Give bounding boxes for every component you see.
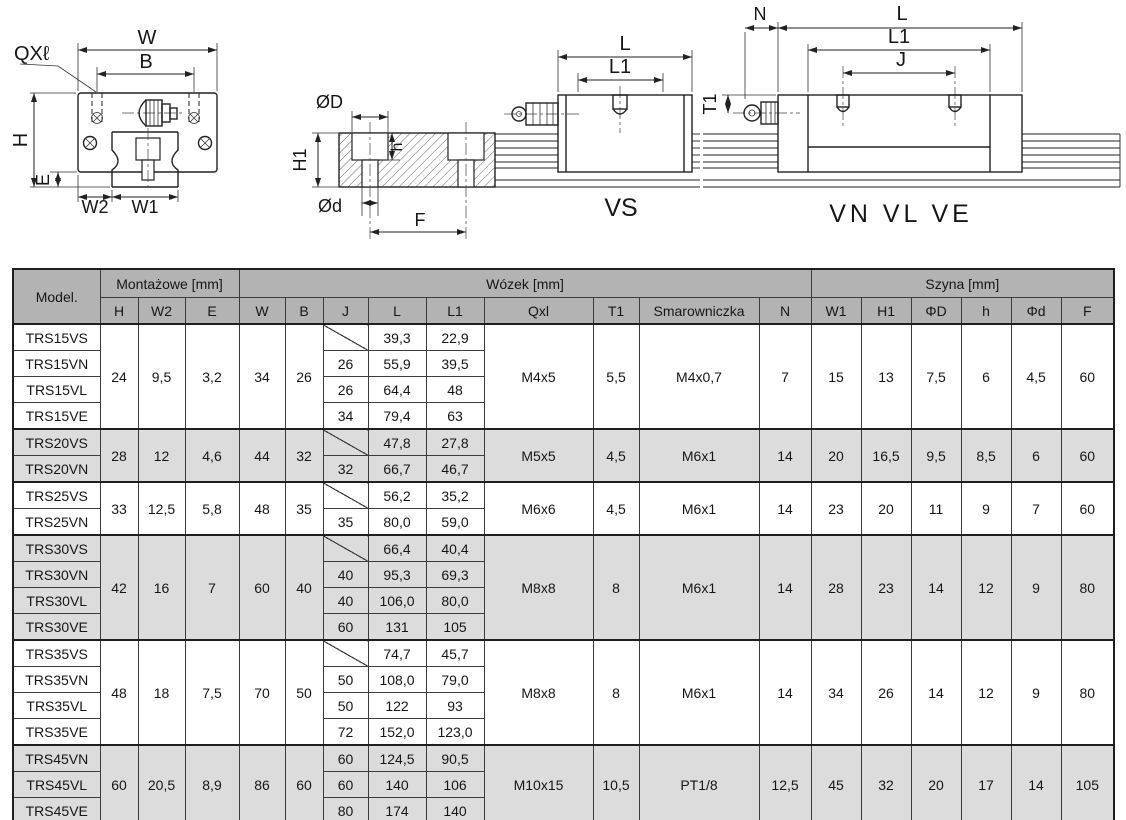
model-cell: TRS25VN <box>13 509 100 536</box>
model-cell: TRS45VE <box>13 798 100 820</box>
value-cell-J: 26 <box>323 351 368 377</box>
group-header: Wózek [mm] <box>239 269 811 298</box>
value-cell-L1: 80,0 <box>426 588 484 614</box>
value-cell-Φd: 14 <box>1011 745 1061 820</box>
model-cell: TRS45VN <box>13 745 100 772</box>
column-header-Qxl: Qxl <box>484 298 593 325</box>
value-cell-F: 60 <box>1061 482 1114 535</box>
model-cell: TRS25VS <box>13 482 100 509</box>
value-cell-L: 152,0 <box>368 719 426 746</box>
table-row: TRS15VS249,53,2342639,322,9M4x55,5M4x0,7… <box>13 324 1114 351</box>
value-cell-W2: 18 <box>138 640 185 745</box>
model-cell: TRS20VS <box>13 429 100 456</box>
value-cell-L: 124,5 <box>368 745 426 772</box>
value-cell-W1: 28 <box>811 535 861 640</box>
dim-label-l1-vs: L1 <box>609 56 631 78</box>
value-cell-L: 74,7 <box>368 640 426 667</box>
value-cell-h: 17 <box>961 745 1011 820</box>
value-cell-J: 32 <box>323 456 368 483</box>
dim-label-w2: W2 <box>82 197 109 217</box>
value-cell-Φd: 9 <box>1011 535 1061 640</box>
value-cell-E: 7,5 <box>185 640 239 745</box>
value-cell-L: 174 <box>368 798 426 820</box>
model-cell: TRS15VE <box>13 403 100 430</box>
value-cell-h: 12 <box>961 535 1011 640</box>
table-row: TRS45VN6020,58,9866060124,590,5M10x1510,… <box>13 745 1114 772</box>
value-cell-h: 8,5 <box>961 429 1011 482</box>
value-cell-B: 60 <box>285 745 323 820</box>
value-cell-h: 12 <box>961 640 1011 745</box>
value-cell-L: 80,0 <box>368 509 426 536</box>
dim-label-j: J <box>896 49 906 71</box>
value-cell-h: 6 <box>961 324 1011 429</box>
value-cell-L: 122 <box>368 693 426 719</box>
value-cell-L1: 22,9 <box>426 324 484 351</box>
value-cell-L1: 69,3 <box>426 562 484 588</box>
value-cell-ΦD: 7,5 <box>911 324 961 429</box>
value-cell-Smarowniczka: M6x1 <box>639 535 759 640</box>
model-cell: TRS30VS <box>13 535 100 562</box>
value-cell-L1: 90,5 <box>426 745 484 772</box>
dim-label-w1: W1 <box>132 197 159 217</box>
value-cell-W: 60 <box>239 535 285 640</box>
value-cell-J-diagonal <box>323 640 368 667</box>
group-header: Montażowe [mm] <box>100 269 239 298</box>
dim-label-e: E <box>33 174 53 186</box>
value-cell-L: 39,3 <box>368 324 426 351</box>
value-cell-W1: 23 <box>811 482 861 535</box>
value-cell-E: 7 <box>185 535 239 640</box>
value-cell-L1: 59,0 <box>426 509 484 536</box>
dim-label-n: N <box>754 4 767 24</box>
caption-vs: VS <box>604 194 637 222</box>
value-cell-B: 32 <box>285 429 323 482</box>
vs-side-view: L L1 VS <box>495 33 700 222</box>
value-cell-L: 64,4 <box>368 377 426 403</box>
value-cell-N: 7 <box>759 324 811 429</box>
value-cell-J: 60 <box>323 772 368 798</box>
column-header-h: h <box>961 298 1011 325</box>
value-cell-W2: 16 <box>138 535 185 640</box>
model-cell: TRS15VN <box>13 351 100 377</box>
value-cell-Smarowniczka: M6x1 <box>639 429 759 482</box>
value-cell-E: 8,9 <box>185 745 239 820</box>
value-cell-E: 4,6 <box>185 429 239 482</box>
value-cell-h: 9 <box>961 482 1011 535</box>
value-cell-L: 47,8 <box>368 429 426 456</box>
dim-label-l-vs: L <box>619 33 630 55</box>
value-cell-J-diagonal <box>323 324 368 351</box>
value-cell-J: 72 <box>323 719 368 746</box>
value-cell-H1: 26 <box>861 640 911 745</box>
value-cell-Qxl: M5x5 <box>484 429 593 482</box>
value-cell-ΦD: 9,5 <box>911 429 961 482</box>
value-cell-H1: 23 <box>861 535 911 640</box>
value-cell-F: 105 <box>1061 745 1114 820</box>
value-cell-H1: 20 <box>861 482 911 535</box>
value-cell-W: 48 <box>239 482 285 535</box>
value-cell-T1: 5,5 <box>593 324 639 429</box>
column-header-B: B <box>285 298 323 325</box>
side-screw-right <box>199 137 212 150</box>
value-cell-ΦD: 11 <box>911 482 961 535</box>
value-cell-F: 80 <box>1061 640 1114 745</box>
mounting-hole-right <box>189 93 200 124</box>
value-cell-Φd: 4,5 <box>1011 324 1061 429</box>
column-header-F: F <box>1061 298 1114 325</box>
dim-label-f: F <box>415 210 426 230</box>
value-cell-J: 40 <box>323 588 368 614</box>
value-cell-L1: 35,2 <box>426 482 484 509</box>
dim-label-l1-vn: L1 <box>888 26 910 48</box>
value-cell-W2: 20,5 <box>138 745 185 820</box>
thread-hole-right <box>949 66 961 127</box>
rail-section-view: ØD H1 h Ød F <box>290 92 495 240</box>
model-cell: TRS15VL <box>13 377 100 403</box>
value-cell-L1: 46,7 <box>426 456 484 483</box>
column-header-W: W <box>239 298 285 325</box>
value-cell-Qxl: M6x6 <box>484 482 593 535</box>
value-cell-L: 66,4 <box>368 535 426 562</box>
value-cell-N: 14 <box>759 535 811 640</box>
value-cell-N: 14 <box>759 640 811 745</box>
value-cell-H1: 32 <box>861 745 911 820</box>
value-cell-L1: 140 <box>426 798 484 820</box>
value-cell-E: 5,8 <box>185 482 239 535</box>
value-cell-L1: 63 <box>426 403 484 430</box>
model-cell: TRS35VL <box>13 693 100 719</box>
column-header-H: H <box>100 298 138 325</box>
dim-label-t1: T1 <box>700 93 720 114</box>
corner-header-model: Model. <box>13 269 100 324</box>
value-cell-Smarowniczka: M4x0,7 <box>639 324 759 429</box>
value-cell-L: 79,4 <box>368 403 426 430</box>
dim-label-od-big: ØD <box>316 92 343 112</box>
dim-label-h1: H1 <box>290 148 310 171</box>
value-cell-N: 14 <box>759 482 811 535</box>
column-header-ΦD: ΦD <box>911 298 961 325</box>
value-cell-W2: 12 <box>138 429 185 482</box>
value-cell-J-diagonal <box>323 482 368 509</box>
value-cell-Φd: 9 <box>1011 640 1061 745</box>
value-cell-J: 26 <box>323 377 368 403</box>
value-cell-J: 60 <box>323 614 368 641</box>
column-header-Smarowniczka: Smarowniczka <box>639 298 759 325</box>
model-cell: TRS30VN <box>13 562 100 588</box>
table-row: TRS25VS3312,55,8483556,235,2M6x64,5M6x11… <box>13 482 1114 509</box>
value-cell-L1: 106 <box>426 772 484 798</box>
value-cell-H: 24 <box>100 324 138 429</box>
column-header-H1: H1 <box>861 298 911 325</box>
value-cell-B: 35 <box>285 482 323 535</box>
value-cell-W: 44 <box>239 429 285 482</box>
value-cell-N: 12,5 <box>759 745 811 820</box>
value-cell-L: 55,9 <box>368 351 426 377</box>
value-cell-L: 108,0 <box>368 667 426 693</box>
value-cell-W: 86 <box>239 745 285 820</box>
model-cell: TRS20VN <box>13 456 100 483</box>
column-header-W1: W1 <box>811 298 861 325</box>
value-cell-T1: 10,5 <box>593 745 639 820</box>
model-cell: TRS35VE <box>13 719 100 746</box>
value-cell-J: 35 <box>323 509 368 536</box>
value-cell-J: 40 <box>323 562 368 588</box>
value-cell-B: 40 <box>285 535 323 640</box>
rail-side-lines <box>703 134 1120 187</box>
group-header: Szyna [mm] <box>811 269 1114 298</box>
value-cell-L: 131 <box>368 614 426 641</box>
value-cell-Smarowniczka: M6x1 <box>639 482 759 535</box>
dim-label-b: B <box>139 51 152 73</box>
value-cell-E: 3,2 <box>185 324 239 429</box>
value-cell-F: 80 <box>1061 535 1114 640</box>
datasheet-page: QXℓ W B H E W2 W1 <box>0 0 1126 820</box>
column-header-L: L <box>368 298 426 325</box>
column-header-L1: L1 <box>426 298 484 325</box>
model-cell: TRS35VS <box>13 640 100 667</box>
column-header-Φd: Φd <box>1011 298 1061 325</box>
value-cell-F: 60 <box>1061 429 1114 482</box>
model-cell: TRS45VL <box>13 772 100 798</box>
model-cell: TRS30VL <box>13 588 100 614</box>
value-cell-Φd: 6 <box>1011 429 1061 482</box>
side-screw-left <box>84 137 97 150</box>
thread-hole-center <box>613 86 627 133</box>
value-cell-J: 34 <box>323 403 368 430</box>
value-cell-J: 50 <box>323 693 368 719</box>
value-cell-T1: 8 <box>593 640 639 745</box>
value-cell-T1: 8 <box>593 535 639 640</box>
dim-label-l-vn: L <box>896 3 907 25</box>
spec-table: Model.Montażowe [mm]Wózek [mm]Szyna [mm]… <box>12 268 1115 820</box>
value-cell-N: 14 <box>759 429 811 482</box>
model-cell: TRS15VS <box>13 324 100 351</box>
dim-label-qxl: QXℓ <box>14 43 50 65</box>
model-cell: TRS35VN <box>13 667 100 693</box>
value-cell-L: 95,3 <box>368 562 426 588</box>
value-cell-Qxl: M10x15 <box>484 745 593 820</box>
value-cell-W1: 34 <box>811 640 861 745</box>
value-cell-W2: 12,5 <box>138 482 185 535</box>
value-cell-W2: 9,5 <box>138 324 185 429</box>
grease-nipple-icon <box>733 102 800 124</box>
value-cell-H: 60 <box>100 745 138 820</box>
value-cell-Smarowniczka: M6x1 <box>639 640 759 745</box>
dim-label-h: H <box>10 133 32 147</box>
value-cell-Qxl: M4x5 <box>484 324 593 429</box>
table-row: TRS30VS42167604066,440,4M8x88M6x11428231… <box>13 535 1114 562</box>
value-cell-W1: 15 <box>811 324 861 429</box>
value-cell-J-diagonal <box>323 429 368 456</box>
value-cell-F: 60 <box>1061 324 1114 429</box>
column-header-T1: T1 <box>593 298 639 325</box>
mounting-hole-left <box>92 93 103 124</box>
value-cell-H: 42 <box>100 535 138 640</box>
value-cell-H: 48 <box>100 640 138 745</box>
value-cell-Smarowniczka: PT1/8 <box>639 745 759 820</box>
dim-label-od-small: Ød <box>318 196 342 216</box>
model-cell: TRS30VE <box>13 614 100 641</box>
value-cell-W1: 20 <box>811 429 861 482</box>
value-cell-W1: 45 <box>811 745 861 820</box>
value-cell-L1: 27,8 <box>426 429 484 456</box>
value-cell-J-diagonal <box>323 535 368 562</box>
value-cell-ΦD: 20 <box>911 745 961 820</box>
cross-section-view: QXℓ W B H E W2 W1 <box>10 27 217 217</box>
rail-side-lines <box>495 134 700 187</box>
value-cell-T1: 4,5 <box>593 482 639 535</box>
value-cell-J: 80 <box>323 798 368 820</box>
value-cell-Qxl: M8x8 <box>484 535 593 640</box>
value-cell-Φd: 7 <box>1011 482 1061 535</box>
caption-vn-vl-ve: VN VL VE <box>829 200 973 228</box>
value-cell-L1: 45,7 <box>426 640 484 667</box>
value-cell-L: 140 <box>368 772 426 798</box>
value-cell-L: 106,0 <box>368 588 426 614</box>
value-cell-J: 50 <box>323 667 368 693</box>
column-header-J: J <box>323 298 368 325</box>
grease-nipple-icon <box>122 100 183 126</box>
value-cell-L: 66,7 <box>368 456 426 483</box>
value-cell-ΦD: 14 <box>911 640 961 745</box>
column-header-E: E <box>185 298 239 325</box>
value-cell-W: 70 <box>239 640 285 745</box>
technical-drawings: QXℓ W B H E W2 W1 <box>0 0 1126 262</box>
value-cell-T1: 4,5 <box>593 429 639 482</box>
value-cell-L1: 79,0 <box>426 667 484 693</box>
dim-label-w: W <box>138 27 157 49</box>
thread-hole-left <box>837 66 849 127</box>
column-header-N: N <box>759 298 811 325</box>
table-row: TRS20VS28124,6443247,827,8M5x54,5M6x1142… <box>13 429 1114 456</box>
value-cell-B: 50 <box>285 640 323 745</box>
value-cell-H1: 16,5 <box>861 429 911 482</box>
value-cell-H1: 13 <box>861 324 911 429</box>
value-cell-L: 56,2 <box>368 482 426 509</box>
value-cell-L1: 40,4 <box>426 535 484 562</box>
vn-side-view: N L L1 J T1 VN VL VE <box>700 3 1120 228</box>
value-cell-J: 60 <box>323 745 368 772</box>
value-cell-L1: 39,5 <box>426 351 484 377</box>
dim-label-h-depth: h <box>389 143 406 152</box>
value-cell-W: 34 <box>239 324 285 429</box>
value-cell-H: 28 <box>100 429 138 482</box>
value-cell-L1: 105 <box>426 614 484 641</box>
value-cell-L1: 123,0 <box>426 719 484 746</box>
grease-nipple-icon <box>504 103 580 125</box>
value-cell-L1: 48 <box>426 377 484 403</box>
table-row: TRS35VS48187,5705074,745,7M8x88M6x114342… <box>13 640 1114 667</box>
value-cell-L1: 93 <box>426 693 484 719</box>
value-cell-ΦD: 14 <box>911 535 961 640</box>
value-cell-H: 33 <box>100 482 138 535</box>
value-cell-Qxl: M8x8 <box>484 640 593 745</box>
column-header-W2: W2 <box>138 298 185 325</box>
value-cell-B: 26 <box>285 324 323 429</box>
